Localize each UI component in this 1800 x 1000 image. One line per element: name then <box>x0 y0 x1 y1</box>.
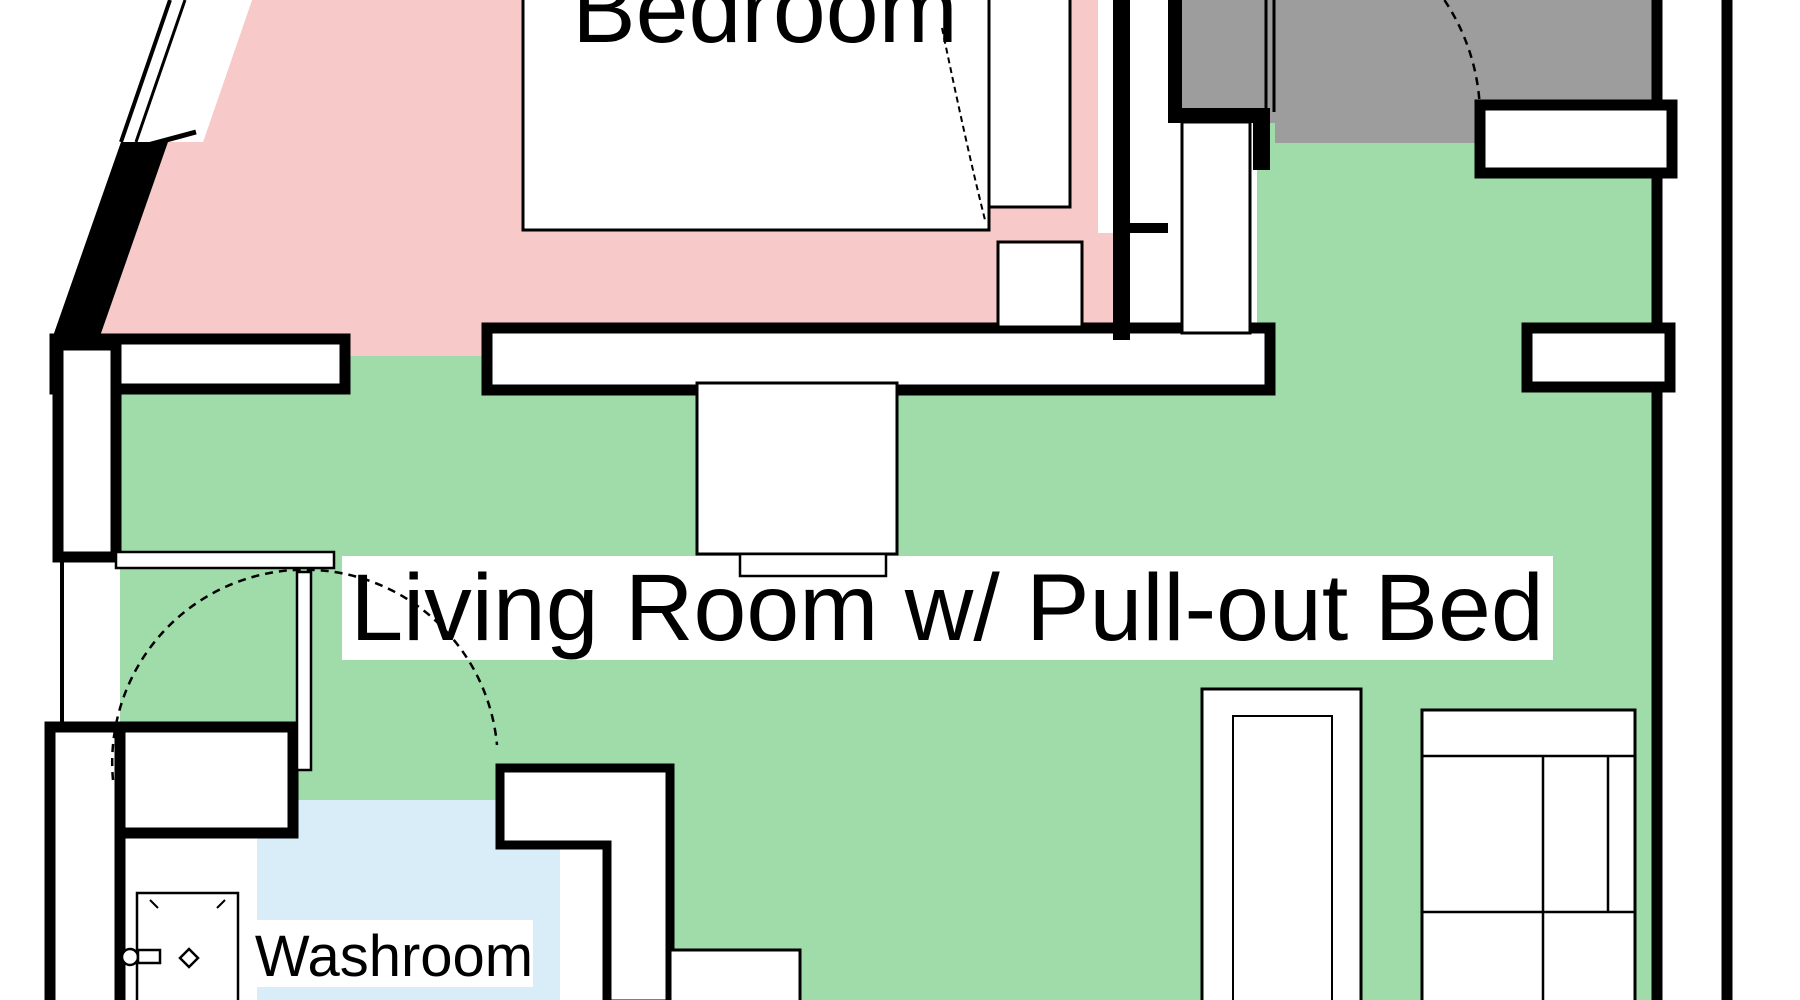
bedroom-label: Bedroom <box>572 0 957 63</box>
wall-entry-right <box>1480 105 1672 173</box>
pullout-sofa <box>1422 710 1635 1000</box>
faucet-spout-icon <box>138 950 160 963</box>
floor-plan-screenshot: Bedroom Living Room w/ Pull-out Bed Wash… <box>0 0 1800 1000</box>
wall-entry-door-jamb <box>1253 108 1270 170</box>
faucet-handle-icon <box>122 949 138 965</box>
living-room-label: Living Room w/ Pull-out Bed <box>350 555 1543 661</box>
hall-cavity-upper <box>1130 0 1168 334</box>
nightstand <box>998 242 1082 327</box>
washroom-corner-unit <box>670 950 800 1000</box>
bookshelf-inner <box>1233 716 1332 1000</box>
wall-left-vertical <box>58 345 116 557</box>
wall-washroom-left <box>50 727 120 1000</box>
bathtub <box>137 893 238 1000</box>
wall-bedroom-right <box>1113 0 1130 340</box>
hall-closet <box>1182 122 1250 333</box>
wall-cavity-cap <box>1130 223 1168 233</box>
wall-right-stub <box>1527 328 1670 387</box>
washroom-door-leaf <box>297 572 311 770</box>
floor-plan-svg: Bedroom Living Room w/ Pull-out Bed Wash… <box>0 0 1800 1000</box>
living-closet-shelf <box>116 552 334 568</box>
washroom-label: Washroom <box>255 924 533 989</box>
wall-bedroom-bottom-right <box>487 328 1270 390</box>
bedroom-wall-slot <box>1098 0 1113 233</box>
bed-side-panel <box>989 0 1070 207</box>
console-table <box>697 383 897 554</box>
wall-entry-closet-face <box>1168 0 1182 122</box>
